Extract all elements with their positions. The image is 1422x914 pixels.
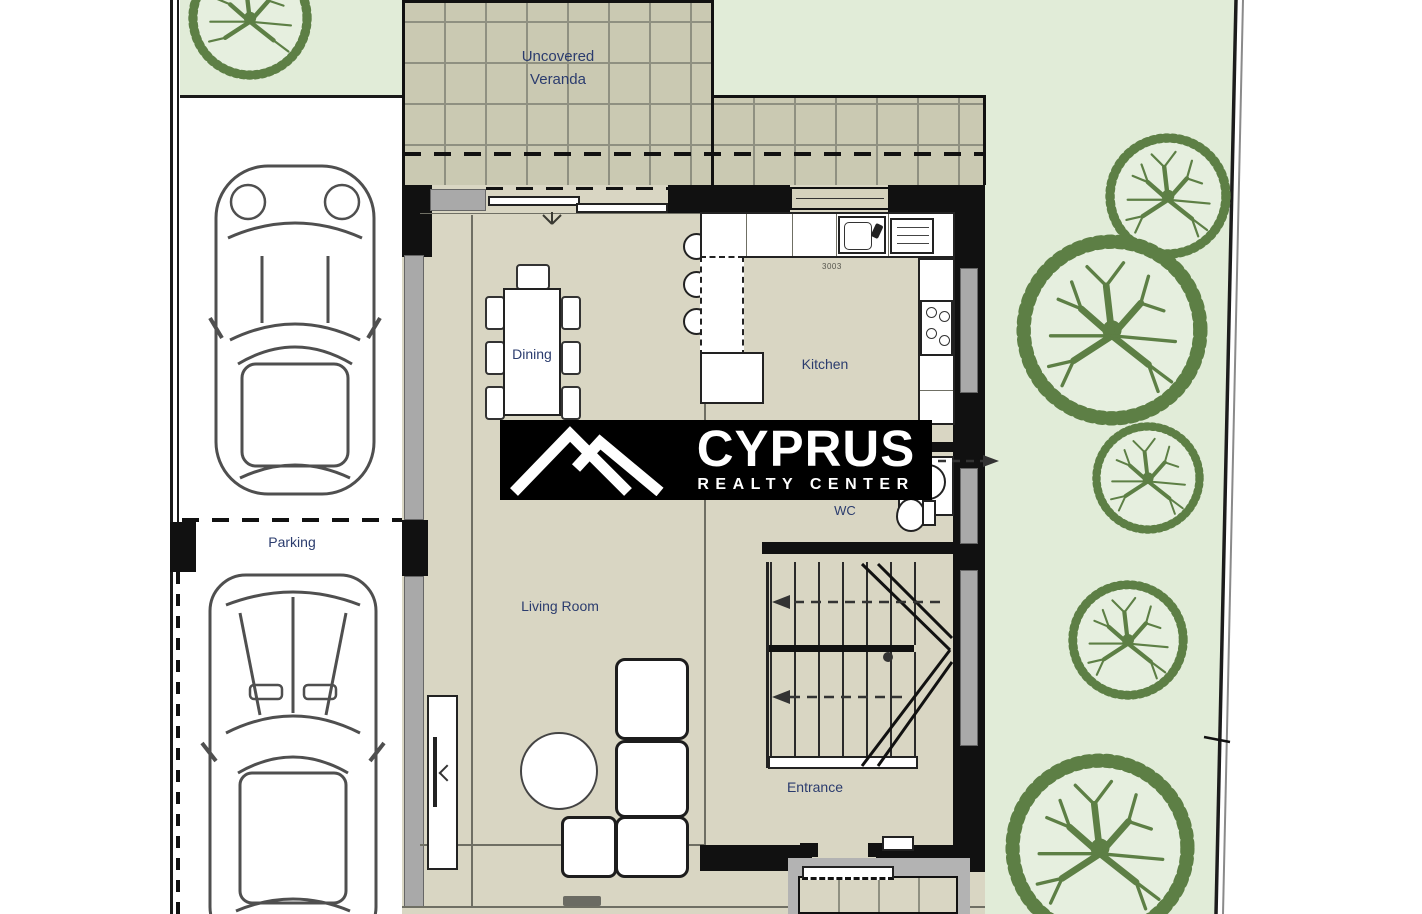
- sliding-door-track: [486, 187, 668, 190]
- tv-screen: [433, 737, 437, 807]
- kitchen-window-sill: [790, 187, 890, 210]
- tv-unit: [427, 695, 458, 870]
- veranda-dashed-line: [404, 152, 984, 156]
- tree-icon: [1096, 426, 1199, 529]
- room-label-veranda-2: Veranda: [402, 71, 714, 88]
- sofa-ottoman: [561, 816, 617, 878]
- sliding-door-panel-1: [488, 196, 580, 206]
- burner: [926, 328, 937, 339]
- garden-top-mid: [714, 0, 986, 95]
- wall-left-pier: [402, 520, 428, 576]
- counter-division: [920, 390, 953, 391]
- burner: [926, 307, 937, 318]
- coffee-table: [520, 732, 598, 810]
- entrance-porch-tiles: [798, 876, 958, 914]
- floor-plan: Parking Uncovered Veranda Dining: [0, 0, 1422, 914]
- counter-division: [792, 214, 793, 256]
- room-label-wc: WC: [820, 503, 870, 518]
- partition-line-vertical-1: [471, 215, 473, 908]
- room-label-veranda-1: Uncovered: [402, 48, 714, 65]
- burner: [939, 311, 950, 322]
- sink-faucet: [870, 223, 883, 239]
- window-sill-top-left: [430, 189, 486, 211]
- counter-division: [746, 214, 747, 256]
- sofa-cushion: [615, 740, 689, 818]
- dining-chair: [485, 386, 505, 420]
- kitchen-peninsula-end: [700, 352, 764, 404]
- wall-wc-bottom: [762, 542, 985, 554]
- stairs-left-edge: [766, 562, 769, 768]
- stairs-bottom-strip: [768, 756, 918, 769]
- kitchen-sink: [838, 216, 886, 254]
- appliance-lines: [897, 227, 929, 228]
- kitchen-appliance: [890, 218, 934, 254]
- tree-icon: [1024, 242, 1201, 419]
- watermark-logo: CYPRUS REALTY CENTER: [500, 420, 932, 500]
- logo-roof-icon: [508, 424, 686, 496]
- wall-top-left-pier: [402, 185, 432, 257]
- kitchen-stove: [920, 300, 953, 356]
- entrance-side-window: [882, 836, 914, 851]
- appliance-lines: [897, 243, 929, 244]
- sink-basin: [844, 222, 872, 250]
- sofa-cushion: [615, 816, 689, 878]
- dining-chair: [516, 264, 550, 290]
- veranda-tiles-right: [714, 95, 986, 185]
- entrance-step: [802, 866, 894, 880]
- dimension-kitchen: 3003: [822, 262, 842, 271]
- stairs-lower-flight: [770, 652, 916, 764]
- stairs-mid-wall: [766, 645, 914, 652]
- wall-top-mid: [668, 185, 790, 213]
- dining-chair: [561, 296, 581, 330]
- parking-left-dashed-border: [176, 570, 180, 914]
- floor-vent: [563, 896, 601, 906]
- window-left-upper: [404, 255, 424, 520]
- window-right-kitchen: [960, 268, 978, 393]
- dining-chair: [485, 296, 505, 330]
- boundary-wall-left: [170, 0, 173, 914]
- sliding-door-panel-2: [576, 203, 668, 213]
- room-label-entrance: Entrance: [760, 779, 870, 795]
- window-right-stairs: [960, 570, 978, 746]
- appliance-lines: [897, 235, 929, 236]
- parking-divider-dashed: [182, 518, 402, 522]
- kitchen-peninsula-counter: [700, 256, 744, 356]
- garden-top-left-tree: [0, 0, 420, 100]
- window-left-lower: [404, 576, 424, 908]
- logo-subtitle: REALTY CENTER: [686, 476, 926, 494]
- window-right-wc: [960, 468, 978, 544]
- tree-icon: [1013, 761, 1188, 914]
- logo-title: CYPRUS: [686, 426, 926, 473]
- counter-division: [836, 214, 837, 256]
- room-label-parking: Parking: [182, 534, 402, 550]
- stairs-upper-flight: [770, 562, 916, 645]
- counter-division: [888, 214, 889, 256]
- tree-icon: [1073, 585, 1183, 695]
- room-label-living-room: Living Room: [500, 598, 620, 614]
- kitchen-window-line: [796, 198, 884, 199]
- dining-chair: [561, 386, 581, 420]
- wc-toilet-tank: [922, 500, 936, 526]
- sofa-cushion: [615, 658, 689, 740]
- room-label-dining: Dining: [480, 346, 584, 362]
- veranda-tiles-left: [402, 0, 714, 185]
- burner: [939, 335, 950, 346]
- tv-mark: [439, 765, 456, 782]
- room-label-kitchen: Kitchen: [770, 356, 880, 372]
- door-post: [800, 843, 818, 857]
